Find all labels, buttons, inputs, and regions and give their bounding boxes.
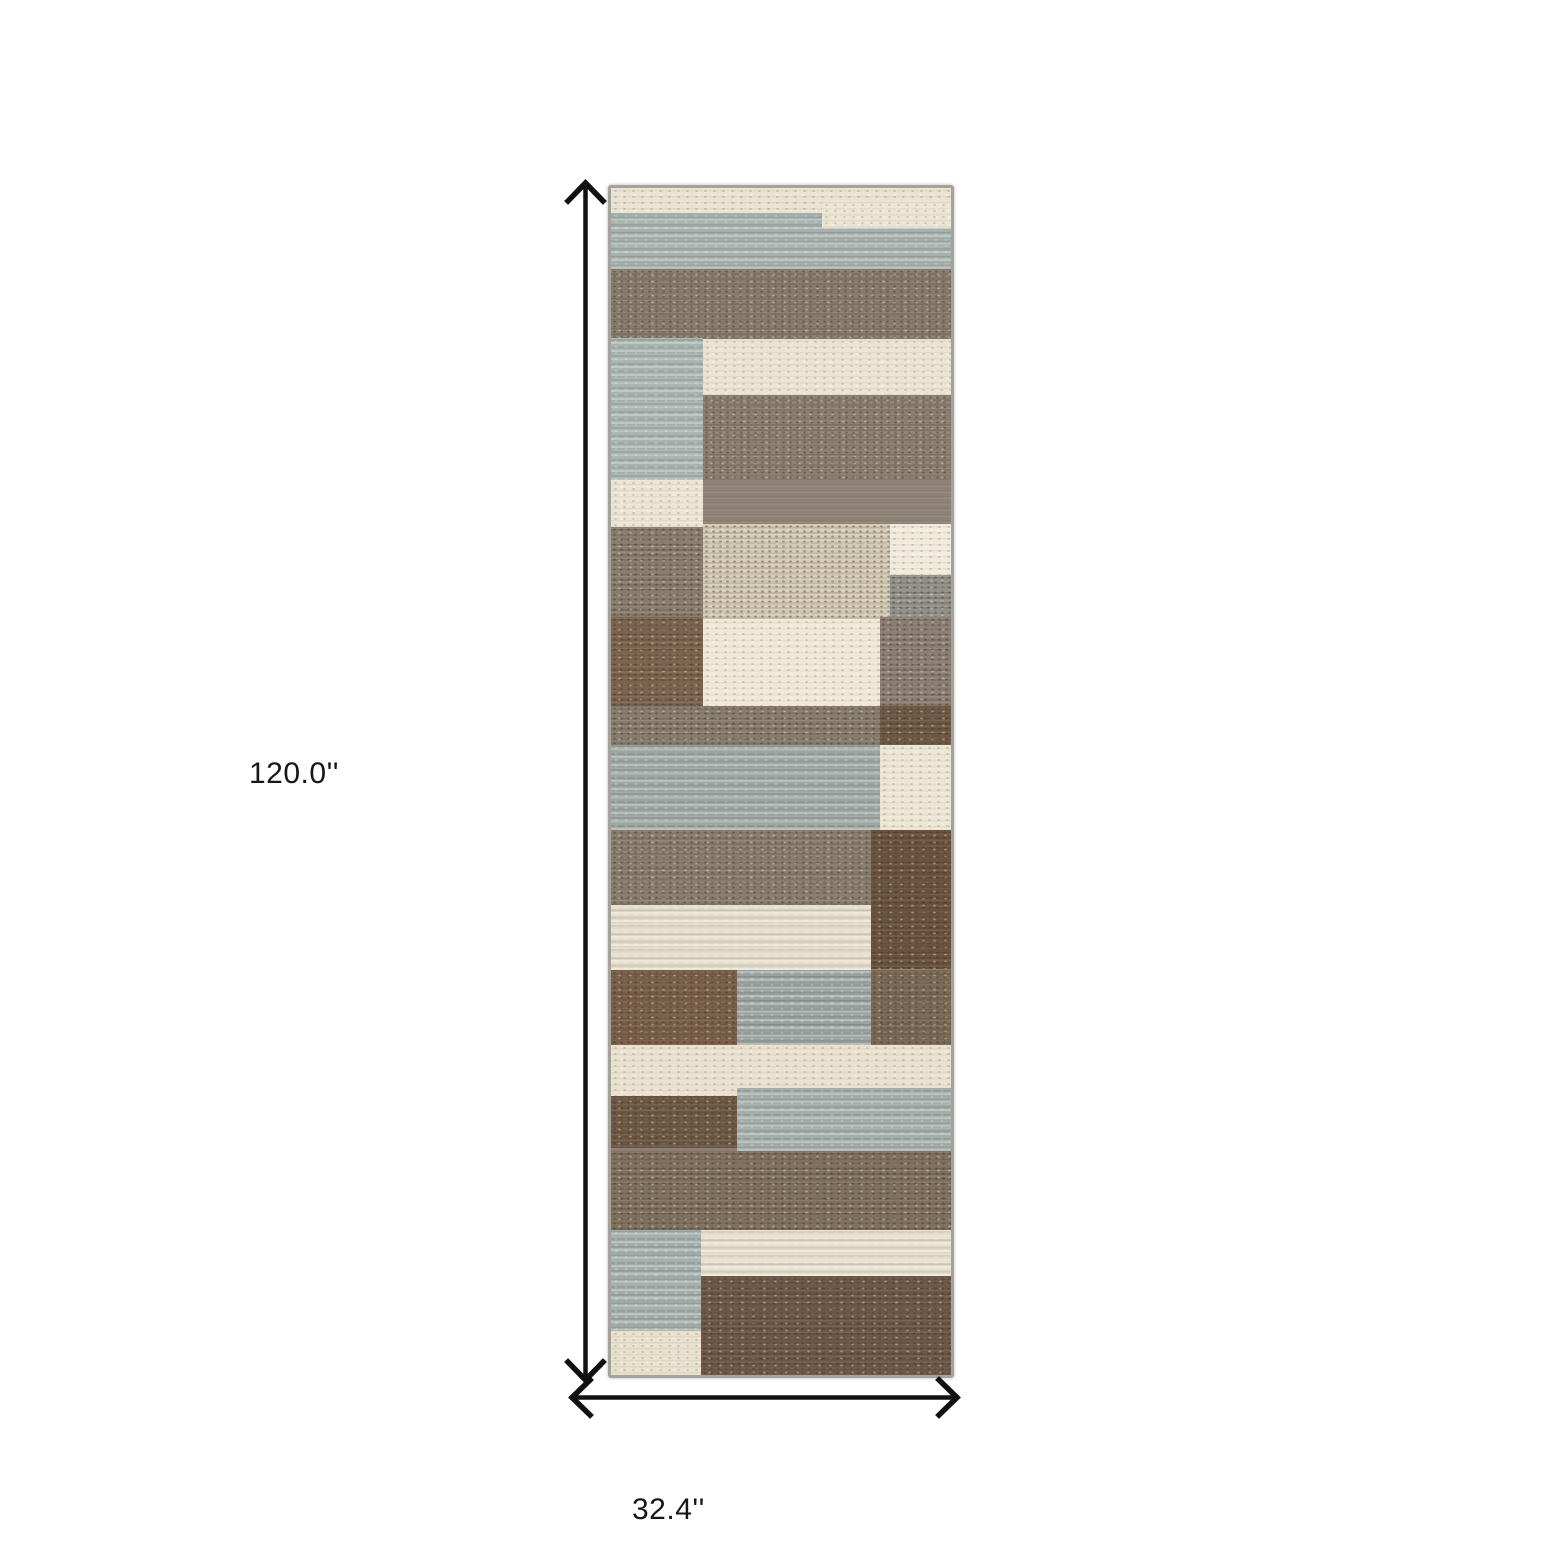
width-dimension-label: 32.4'' (632, 1493, 705, 1527)
product-dimension-image: 120.0'' 32.4'' (0, 0, 1560, 1560)
dimension-arrows (0, 0, 1560, 1560)
width-dimension-arrow (572, 1380, 957, 1415)
height-dimension-label: 120.0'' (249, 757, 339, 791)
height-dimension-arrow (568, 183, 603, 1380)
